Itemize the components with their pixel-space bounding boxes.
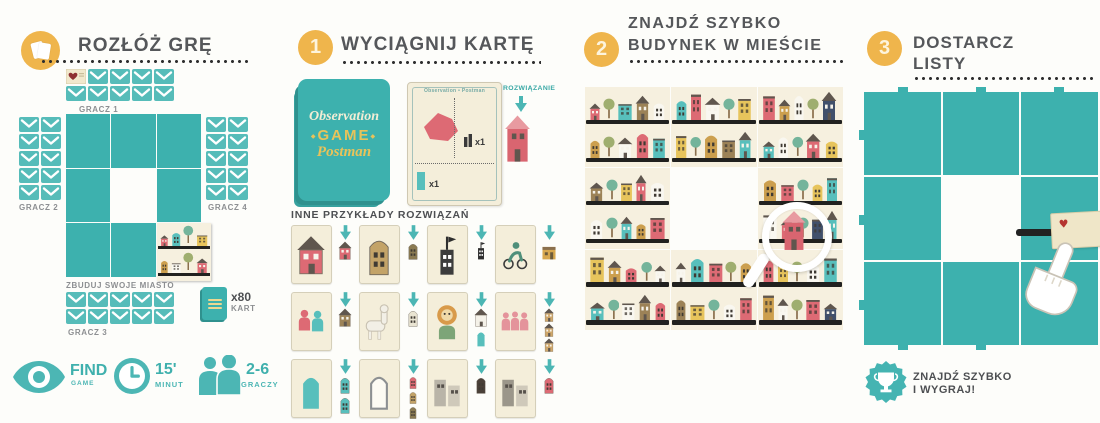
arrow-down-icon — [476, 359, 487, 374]
example-card — [291, 359, 332, 418]
envelope-tile — [19, 134, 39, 149]
tile-notch — [1054, 87, 1064, 93]
example-solution — [468, 225, 493, 289]
step3-badge: 3 — [867, 31, 902, 66]
envelope-tile — [228, 117, 248, 132]
city-tile-face-up — [157, 223, 211, 281]
dotted-divider — [341, 60, 541, 65]
house-icon — [649, 180, 666, 201]
clock-icon — [113, 357, 151, 395]
card-divider — [415, 163, 494, 164]
house-icon — [171, 231, 182, 246]
player2-letters — [19, 117, 61, 200]
example-solution — [400, 359, 425, 423]
city-row — [585, 206, 670, 244]
count-2: x1 — [429, 179, 439, 189]
example-card — [359, 359, 400, 418]
house-icon — [541, 323, 557, 337]
stat-find-unit: GAME — [71, 380, 95, 387]
dotted-divider — [628, 59, 843, 64]
building-icon — [463, 134, 473, 147]
board-tile-back — [864, 177, 941, 260]
house-icon — [589, 103, 601, 120]
board-tile-back — [111, 223, 155, 277]
example-solution — [332, 292, 357, 356]
city-row — [585, 168, 670, 206]
build-city-label: ZBUDUJ SWOJE MIASTO — [66, 281, 174, 290]
tree-icon — [641, 259, 652, 283]
envelope-tile — [19, 151, 39, 166]
flag-house-icon — [473, 241, 489, 260]
tree-icon — [791, 297, 803, 321]
house-icon — [635, 222, 647, 239]
hand-cursor-icon — [1008, 238, 1096, 320]
tower-icon — [541, 375, 557, 394]
arrow-down-icon — [544, 225, 555, 240]
cyclist-icon — [500, 234, 530, 276]
envelope-tile — [228, 151, 248, 166]
deck-line2: ◆GAME◆ — [298, 127, 390, 144]
envelope-tile — [132, 86, 152, 101]
example-item — [291, 292, 357, 356]
player4-label: GRACZ 4 — [208, 203, 247, 212]
city-tile — [671, 250, 756, 330]
house-icon — [805, 133, 821, 158]
arch-door-icon — [473, 328, 489, 347]
board-tile-back — [943, 92, 1020, 175]
stat-players: 2-6 — [246, 361, 269, 379]
arrow-down-icon — [408, 359, 419, 374]
envelope-tile — [66, 86, 86, 101]
setup-badge — [21, 31, 60, 70]
arrow-down-icon — [408, 292, 419, 307]
envelope-tile — [228, 134, 248, 149]
tower-icon — [337, 375, 353, 394]
envelope-tile — [206, 117, 226, 132]
envelope-tile — [132, 292, 152, 307]
board-tile-back — [157, 114, 201, 168]
house-icon — [826, 175, 838, 201]
flag-house-icon — [432, 234, 462, 276]
tower-icon — [337, 395, 353, 414]
envelope-tile — [88, 69, 108, 84]
teal-chip-icon — [417, 172, 425, 190]
house-icon — [589, 302, 606, 321]
envelope-tile — [206, 185, 226, 200]
board-tile-back — [157, 169, 201, 223]
arrow-down-icon — [340, 292, 351, 307]
envelope-tile — [110, 292, 130, 307]
house-icon — [778, 99, 791, 120]
house-icon — [624, 266, 638, 283]
envelope-tile — [88, 292, 108, 307]
llama-icon — [364, 301, 394, 343]
arch-outline-icon — [364, 368, 394, 410]
house-icon — [589, 138, 601, 158]
city-row — [758, 125, 843, 163]
example-solution — [400, 292, 425, 356]
city-tile — [758, 87, 843, 167]
three-figures-icon — [500, 301, 530, 343]
heart-letter-tile — [66, 69, 86, 84]
house-icon — [196, 258, 208, 273]
example-item — [359, 225, 425, 289]
player4-letters — [206, 117, 248, 200]
tree-icon — [792, 134, 804, 158]
city-row — [585, 288, 670, 326]
envelope-tile — [19, 185, 39, 200]
house-icon — [620, 181, 633, 201]
house-icon — [589, 217, 604, 239]
house-icon — [708, 261, 724, 283]
envelope-tile — [132, 69, 152, 84]
house-icon — [337, 308, 353, 327]
house-icon — [589, 182, 604, 201]
house-icon — [762, 177, 778, 201]
house-icon — [607, 260, 622, 283]
dotted-divider — [913, 76, 1095, 81]
player3-letters — [66, 292, 174, 324]
card-deck: Observation ◆GAME◆ Postman — [298, 79, 390, 201]
tower-icon — [364, 234, 394, 276]
house-icon — [654, 265, 666, 283]
players-icon — [197, 355, 243, 397]
arrow-down-icon — [544, 359, 555, 374]
example-solution — [468, 292, 493, 356]
envelope-tile — [154, 86, 174, 101]
city-tile — [585, 87, 670, 167]
house-icon — [690, 91, 702, 120]
tree-icon — [797, 177, 809, 201]
house-icon — [722, 302, 737, 321]
envelope-tile — [206, 134, 226, 149]
example-item — [495, 292, 561, 356]
envelope-tile — [110, 86, 130, 101]
board-tile-back — [864, 262, 941, 345]
solution-house-icon — [504, 112, 531, 164]
solution-label: ROZWIĄZANIE — [503, 85, 555, 92]
house-icon — [737, 96, 752, 120]
tile-notch — [898, 344, 908, 350]
house-icon — [739, 295, 753, 321]
city-tile — [585, 168, 670, 248]
house-icon — [635, 174, 647, 201]
envelope-tile — [41, 117, 61, 132]
player1-letters — [66, 69, 174, 101]
house-icon — [762, 93, 776, 120]
stat-time-unit: MINUT — [155, 380, 184, 389]
card-header: Observation • Postman — [408, 88, 501, 94]
house-icon — [337, 241, 353, 260]
tower-icon — [405, 308, 421, 327]
tile-notch — [898, 87, 908, 93]
win-text-line2: I WYGRAJ! — [913, 384, 976, 396]
house-icon — [811, 182, 824, 201]
heart-icon: ♥ — [1058, 217, 1069, 230]
tree-icon — [608, 297, 620, 321]
house-icon — [621, 301, 636, 321]
tile-notch — [976, 344, 986, 350]
city-tile — [671, 87, 756, 167]
house-icon — [823, 303, 838, 321]
example-card — [427, 225, 468, 284]
people-icon — [296, 301, 326, 343]
house-icon — [689, 255, 706, 283]
house-icon — [589, 254, 605, 283]
example-solution — [536, 359, 561, 423]
tree-icon — [690, 134, 701, 158]
house-icon — [762, 141, 775, 158]
example-solution — [468, 359, 493, 423]
arrow-down-icon — [544, 292, 555, 307]
example-card — [495, 225, 536, 284]
envelope-tile — [19, 168, 39, 183]
arrow-down-icon — [476, 292, 487, 307]
example-item — [359, 359, 425, 423]
city-row — [758, 168, 843, 206]
tree-icon — [708, 297, 720, 321]
house-icon — [793, 92, 805, 120]
house-icon — [160, 235, 169, 246]
tree-icon — [603, 96, 615, 120]
house-icon — [652, 136, 666, 158]
envelope-tile — [41, 134, 61, 149]
city-row — [157, 250, 211, 277]
house-icon — [635, 95, 650, 120]
stat-time: 15' — [155, 361, 177, 379]
house-icon — [649, 215, 666, 239]
player2-label: GRACZ 2 — [19, 203, 58, 212]
envelope-tile — [41, 151, 61, 166]
example-item — [427, 292, 493, 356]
house-icon — [620, 216, 633, 239]
player3-label: GRACZ 3 — [68, 328, 107, 337]
house-icon — [675, 262, 687, 283]
deck-line1: Observation — [298, 109, 390, 125]
house-icon — [617, 137, 633, 158]
envelope-tile — [154, 309, 174, 324]
tile-notch — [859, 130, 865, 140]
step2-title-line2: BUDYNEK W MIEŚCIE — [628, 37, 822, 55]
tower-icon — [473, 375, 489, 394]
trophy-badge — [865, 361, 907, 403]
city-row — [585, 250, 670, 288]
shop-icon — [541, 241, 557, 260]
step3-title-line1: DOSTARCZ — [913, 33, 1014, 53]
tower-icon — [405, 375, 421, 389]
envelope-tile — [66, 309, 86, 324]
example-item — [291, 225, 357, 289]
step3-title-line2: LISTY — [913, 54, 966, 74]
example-card — [495, 359, 536, 418]
city-row — [585, 125, 670, 163]
house-icon — [675, 133, 687, 158]
stat-find: FIND — [70, 362, 107, 380]
house-icon — [780, 183, 795, 201]
house-icon — [805, 297, 821, 321]
stat-players-unit: GRACZY — [241, 380, 279, 389]
house-icon — [541, 338, 557, 352]
deck-unit: KART — [231, 304, 256, 313]
tile-notch — [859, 215, 865, 225]
house-icon — [654, 300, 667, 321]
count-1: x1 — [475, 137, 485, 147]
house-icon — [171, 262, 182, 273]
house-icon — [638, 294, 652, 321]
house-icon — [296, 234, 326, 276]
house-icon — [473, 308, 489, 327]
envelope-tile — [154, 292, 174, 307]
example-solution — [536, 225, 561, 289]
tree-icon — [807, 96, 819, 120]
deck-line3: Postman — [298, 144, 390, 161]
board-tile-back — [111, 114, 155, 168]
tree-icon — [723, 96, 735, 120]
setup-title: ROZŁÓŻ GRĘ — [78, 35, 213, 57]
example-card — [291, 292, 332, 351]
envelope-tile — [88, 309, 108, 324]
house-icon — [738, 131, 752, 158]
step1-badge: 1 — [298, 30, 333, 65]
envelope-tile — [154, 69, 174, 84]
deck-mini — [202, 287, 227, 320]
house-icon — [160, 259, 169, 273]
tree-icon — [183, 249, 194, 273]
sample-card: Observation • Postman x1 x1 — [407, 82, 502, 206]
envelope-tile — [19, 117, 39, 132]
house-icon — [777, 134, 790, 158]
city-row — [758, 87, 843, 125]
house-icon — [652, 101, 666, 120]
example-item — [291, 359, 357, 423]
house-icon — [635, 130, 650, 158]
city-row — [671, 288, 756, 326]
envelope-tile — [206, 168, 226, 183]
house-icon — [721, 138, 736, 158]
example-card — [427, 359, 468, 418]
envelope-tile — [110, 309, 130, 324]
card-divider — [454, 98, 455, 158]
tree-icon — [606, 215, 618, 239]
envelope-tile — [66, 292, 86, 307]
tile-notch — [859, 300, 865, 310]
board-tile-back — [66, 223, 110, 277]
arrow-down-icon — [476, 225, 487, 240]
city-row — [671, 125, 756, 163]
envelope-tile — [110, 69, 130, 84]
example-item — [427, 225, 493, 289]
step2-title-line1: ZNAJDŹ SZYBKO — [628, 15, 782, 33]
tree-icon — [606, 177, 618, 201]
step1-title: WYCIĄGNIJ KARTĘ — [341, 34, 534, 56]
win-text-line1: ZNAJDŹ SZYBKO — [913, 371, 1012, 383]
deck-count: x80 — [231, 290, 251, 304]
trophy-icon — [865, 361, 907, 403]
board-tile-back — [1021, 92, 1098, 175]
city-tile — [585, 250, 670, 330]
ornament-icon: ◆ — [311, 133, 318, 140]
letter-slot — [1016, 229, 1054, 236]
examples-grid — [291, 225, 561, 423]
house-icon — [777, 298, 789, 321]
house-icon — [703, 132, 719, 158]
example-card — [427, 292, 468, 351]
example-card — [359, 292, 400, 351]
example-item — [427, 359, 493, 423]
tower-icon — [405, 390, 421, 404]
buildings-icon — [432, 368, 462, 410]
house-icon — [675, 297, 687, 321]
example-item — [359, 292, 425, 356]
envelope-tile — [88, 86, 108, 101]
example-solution — [332, 225, 357, 289]
city-row — [671, 87, 756, 125]
eye-icon — [13, 359, 65, 395]
tower-icon — [405, 241, 421, 260]
envelope-tile — [41, 168, 61, 183]
lion-icon — [432, 301, 462, 343]
envelope-tile — [132, 309, 152, 324]
house-icon — [617, 102, 633, 120]
city-row — [585, 87, 670, 125]
ornament-icon: ◆ — [371, 133, 378, 140]
player1-label: GRACZ 1 — [79, 105, 118, 114]
tile-notch — [976, 87, 986, 93]
board-tile-back — [66, 169, 110, 223]
house-icon — [821, 91, 837, 120]
tree-icon — [603, 134, 615, 158]
arrow-down-icon — [408, 225, 419, 240]
arch-door-icon — [296, 368, 326, 410]
examples-title: INNE PRZYKŁADY ROZWIĄZAŃ — [291, 209, 469, 221]
envelope-tile — [206, 151, 226, 166]
house-icon — [541, 308, 557, 322]
dotted-divider — [40, 59, 252, 64]
letters-icon — [37, 42, 51, 60]
arrow-down-icon — [340, 225, 351, 240]
board-tile-back — [864, 92, 941, 175]
instruction-sheet: ROZŁÓŻ GRĘ GRACZ 1 GRACZ 2 GRACZ 4 ZBUDU… — [0, 0, 1100, 423]
envelope-tile — [228, 185, 248, 200]
tree-icon — [183, 223, 194, 246]
example-card — [291, 225, 332, 284]
envelope-tile — [41, 185, 61, 200]
house-icon — [823, 255, 838, 283]
magnifier-icon — [762, 202, 832, 272]
arrow-down-icon — [340, 359, 351, 374]
house-icon — [704, 97, 721, 120]
envelope-tile — [228, 168, 248, 183]
example-solution — [536, 292, 561, 356]
board-tile-back — [66, 114, 110, 168]
buildings-icon — [500, 368, 530, 410]
city-empty-slot — [671, 168, 756, 248]
city-row — [758, 288, 843, 326]
house-icon — [675, 98, 688, 120]
tower-icon — [405, 405, 421, 419]
city-row — [157, 223, 211, 250]
example-item — [495, 359, 561, 423]
house-icon — [762, 292, 775, 321]
arrow-down-icon — [515, 96, 527, 112]
house-icon — [689, 303, 706, 321]
house-icon — [196, 234, 208, 246]
example-solution — [400, 225, 425, 289]
example-item — [495, 225, 561, 289]
example-card — [495, 292, 536, 351]
step2-badge: 2 — [584, 32, 619, 67]
example-card — [359, 225, 400, 284]
